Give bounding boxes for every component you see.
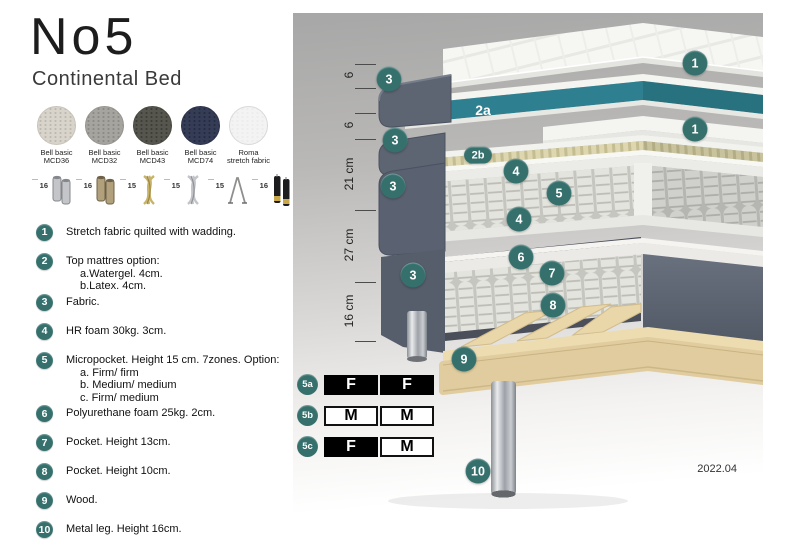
page-title: No5 <box>30 10 292 65</box>
callout-2b: 2b <box>464 147 492 164</box>
callout-10: 10 <box>466 459 491 484</box>
leg-separator-dash <box>252 179 258 180</box>
leg-option-2: 16 <box>76 173 118 212</box>
dimension-tick <box>355 210 376 211</box>
feature-number-badge: 7 <box>36 434 53 451</box>
fabric-swatch-label-line2: MCD36 <box>40 157 72 166</box>
feature-item-4: 4HR foam 30kg. 3cm. <box>36 323 292 340</box>
feature-text: Top mattres option: <box>66 253 163 268</box>
fabric-swatch-mcd32: Bell basicMCD32 <box>82 106 127 166</box>
dimension-tick <box>355 282 376 283</box>
leg-option-1: 16 <box>32 173 74 212</box>
metal-leg-back <box>407 311 427 362</box>
leg-separator-dash <box>32 179 38 180</box>
firmness-row-5b: 5bMM <box>297 405 434 426</box>
feature-item-7: 7Pocket. Height 13cm. <box>36 434 292 451</box>
fabric-swatch-label: Bell basicMCD36 <box>40 149 72 166</box>
firmness-row-5c: 5cFM <box>297 436 434 457</box>
leg-height-label: 15 <box>128 181 136 190</box>
feature-text-block: Fabric. <box>66 294 100 311</box>
fabric-swatch-label-line2: MCD32 <box>88 157 120 166</box>
fabric-swatch-label: Bell basicMCD74 <box>184 149 216 166</box>
feature-text-block: Top mattres option:a.Watergel. 4cm.b.Lat… <box>66 253 163 293</box>
callout-7: 7 <box>540 261 565 286</box>
dimension-label: 27 cm <box>342 215 356 275</box>
feature-item-8: 8Pocket. Height 10cm. <box>36 463 292 480</box>
callout-3: 3 <box>383 128 408 153</box>
feature-subitem: a.Watergel. 4cm. <box>80 268 163 281</box>
leg-icon-cyl2 <box>270 173 294 212</box>
fabric-swatch-mcd36: Bell basicMCD36 <box>34 106 79 166</box>
fabric-swatch-label: Bell basicMCD32 <box>88 149 120 166</box>
fabric-swatch-mcd43: Bell basicMCD43 <box>130 106 175 166</box>
feature-list: 1Stretch fabric quilted with wadding.2To… <box>36 224 292 539</box>
feature-text: Stretch fabric quilted with wadding. <box>66 224 236 239</box>
firmness-cells: MM <box>324 406 434 426</box>
feature-text: HR foam 30kg. 3cm. <box>66 323 166 338</box>
feature-number-badge: 2 <box>36 253 53 270</box>
metal-leg-front <box>491 381 516 498</box>
feature-text-block: Pocket. Height 10cm. <box>66 463 171 480</box>
firmness-cell: M <box>380 406 434 426</box>
feature-subitem: b. Medium/ medium <box>80 379 279 392</box>
callout-3: 3 <box>381 174 406 199</box>
leg-icon-twist <box>138 173 162 212</box>
feature-subitem: b.Latex. 4cm. <box>80 280 163 293</box>
dimension-tick <box>355 88 376 89</box>
feature-text: Metal leg. Height 16cm. <box>66 521 182 536</box>
feature-number-badge: 3 <box>36 294 53 311</box>
fabric-swatch-circle <box>181 106 220 145</box>
callout-3: 3 <box>401 263 426 288</box>
dimension-tick <box>355 139 376 140</box>
firmness-cell: M <box>380 437 434 457</box>
firmness-cell: F <box>380 375 434 395</box>
leg-icon-cyl <box>50 173 74 212</box>
feature-text: Pocket. Height 13cm. <box>66 434 171 449</box>
callout-4: 4 <box>504 159 529 184</box>
info-column: No5 Continental Bed Bell basicMCD36Bell … <box>30 10 292 550</box>
callout-2a: 2a <box>475 102 491 118</box>
feature-item-10: 10Metal leg. Height 16cm. <box>36 521 292 538</box>
feature-number-badge: 10 <box>36 521 53 538</box>
leg-separator-dash <box>76 179 82 180</box>
callout-1: 1 <box>683 117 708 142</box>
leg-height-label: 16 <box>260 181 268 190</box>
feature-text-block: HR foam 30kg. 3cm. <box>66 323 166 340</box>
feature-text: Polyurethane foam 25kg. 2cm. <box>66 405 215 420</box>
leg-option-4: 15 <box>164 173 206 212</box>
feature-text-block: Stretch fabric quilted with wadding. <box>66 224 236 241</box>
dimension-tick <box>355 341 376 342</box>
callout-4: 4 <box>507 207 532 232</box>
version-label: 2022.04 <box>697 463 737 475</box>
feature-subitem: a. Firm/ firm <box>80 367 279 380</box>
feature-text-block: Metal leg. Height 16cm. <box>66 521 182 538</box>
fabric-swatch-label: Bell basicMCD43 <box>136 149 168 166</box>
feature-number-badge: 9 <box>36 492 53 509</box>
fabric-swatch-circle <box>229 106 268 145</box>
leg-icon-cyl <box>94 173 118 212</box>
firmness-table: 5aFF5bMM5cFM <box>297 374 434 467</box>
firmness-badge-5a: 5a <box>297 374 318 395</box>
feature-item-5: 5Micropocket. Height 15 cm. 7zones. Opti… <box>36 352 292 405</box>
leg-height-label: 16 <box>40 181 48 190</box>
feature-number-badge: 5 <box>36 352 53 369</box>
fabric-swatch-label-line2: stretch fabric <box>227 157 270 166</box>
feature-text: Fabric. <box>66 294 100 309</box>
dimension-label: 21 cm <box>342 144 356 204</box>
layer-micropocket <box>379 150 763 255</box>
callout-3: 3 <box>377 67 402 92</box>
firmness-cell: F <box>324 437 378 457</box>
callout-5: 5 <box>547 181 572 206</box>
dimension-label: 16 cm <box>342 281 356 341</box>
leg-separator-dash <box>164 179 170 180</box>
feature-text: Pocket. Height 10cm. <box>66 463 171 478</box>
feature-text: Micropocket. Height 15 cm. 7zones. Optio… <box>66 352 279 367</box>
fabric-swatch-circle <box>133 106 172 145</box>
layer-top-mattress-2a <box>379 74 763 129</box>
feature-text-block: Wood. <box>66 492 98 509</box>
dimension-tick <box>355 64 376 65</box>
fabric-swatch-label-line2: MCD43 <box>136 157 168 166</box>
leg-height-label: 16 <box>84 181 92 190</box>
leg-options-row: 161615151516 <box>32 173 292 212</box>
feature-text-block: Micropocket. Height 15 cm. 7zones. Optio… <box>66 352 279 405</box>
callout-6: 6 <box>509 245 534 270</box>
feature-text: Wood. <box>66 492 98 507</box>
fabric-swatch-circle <box>37 106 76 145</box>
feature-number-badge: 6 <box>36 405 53 422</box>
feature-item-2: 2Top mattres option:a.Watergel. 4cm.b.La… <box>36 253 292 293</box>
feature-item-9: 9Wood. <box>36 492 292 509</box>
firmness-cell: F <box>324 375 378 395</box>
page-subtitle: Continental Bed <box>32 68 292 91</box>
feature-text-block: Pocket. Height 13cm. <box>66 434 171 451</box>
firmness-cells: FM <box>324 437 434 457</box>
leg-height-label: 15 <box>172 181 180 190</box>
callout-1: 1 <box>683 51 708 76</box>
fabric-swatch-label-line2: MCD74 <box>184 157 216 166</box>
callout-8: 8 <box>541 293 566 318</box>
firmness-cells: FF <box>324 375 434 395</box>
fabric-swatch-mcd74: Bell basicMCD74 <box>178 106 223 166</box>
leg-separator-dash <box>208 179 214 180</box>
leg-option-6: 16 <box>252 173 294 212</box>
leg-icon-twist <box>182 173 206 212</box>
bed-diagram-panel: 6621 cm27 cm16 cm 132a132b43546738910 5a… <box>293 13 763 518</box>
fabric-swatch-label: Romastretch fabric <box>227 149 270 166</box>
firmness-badge-5c: 5c <box>297 436 318 457</box>
feature-number-badge: 8 <box>36 463 53 480</box>
leg-icon-hairpin <box>226 173 250 212</box>
fabric-swatch-row: Bell basicMCD36Bell basicMCD32Bell basic… <box>34 106 292 166</box>
dimension-tick <box>355 113 376 114</box>
layer-lower-box <box>381 237 763 498</box>
feature-number-badge: 1 <box>36 224 53 241</box>
firmness-badge-5b: 5b <box>297 405 318 426</box>
leg-height-label: 15 <box>216 181 224 190</box>
callout-9: 9 <box>452 347 477 372</box>
feature-number-badge: 4 <box>36 323 53 340</box>
leg-option-3: 15 <box>120 173 162 212</box>
feature-subitem: c. Firm/ medium <box>80 392 279 405</box>
firmness-cell: M <box>324 406 378 426</box>
firmness-row-5a: 5aFF <box>297 374 434 395</box>
leg-separator-dash <box>120 179 126 180</box>
fabric-swatch-circle <box>85 106 124 145</box>
feature-item-6: 6Polyurethane foam 25kg. 2cm. <box>36 405 292 422</box>
leg-option-5: 15 <box>208 173 250 212</box>
feature-text-block: Polyurethane foam 25kg. 2cm. <box>66 405 215 422</box>
feature-item-1: 1Stretch fabric quilted with wadding. <box>36 224 292 241</box>
feature-item-3: 3Fabric. <box>36 294 292 311</box>
fabric-swatch-stretch-fabric: Romastretch fabric <box>226 106 271 166</box>
